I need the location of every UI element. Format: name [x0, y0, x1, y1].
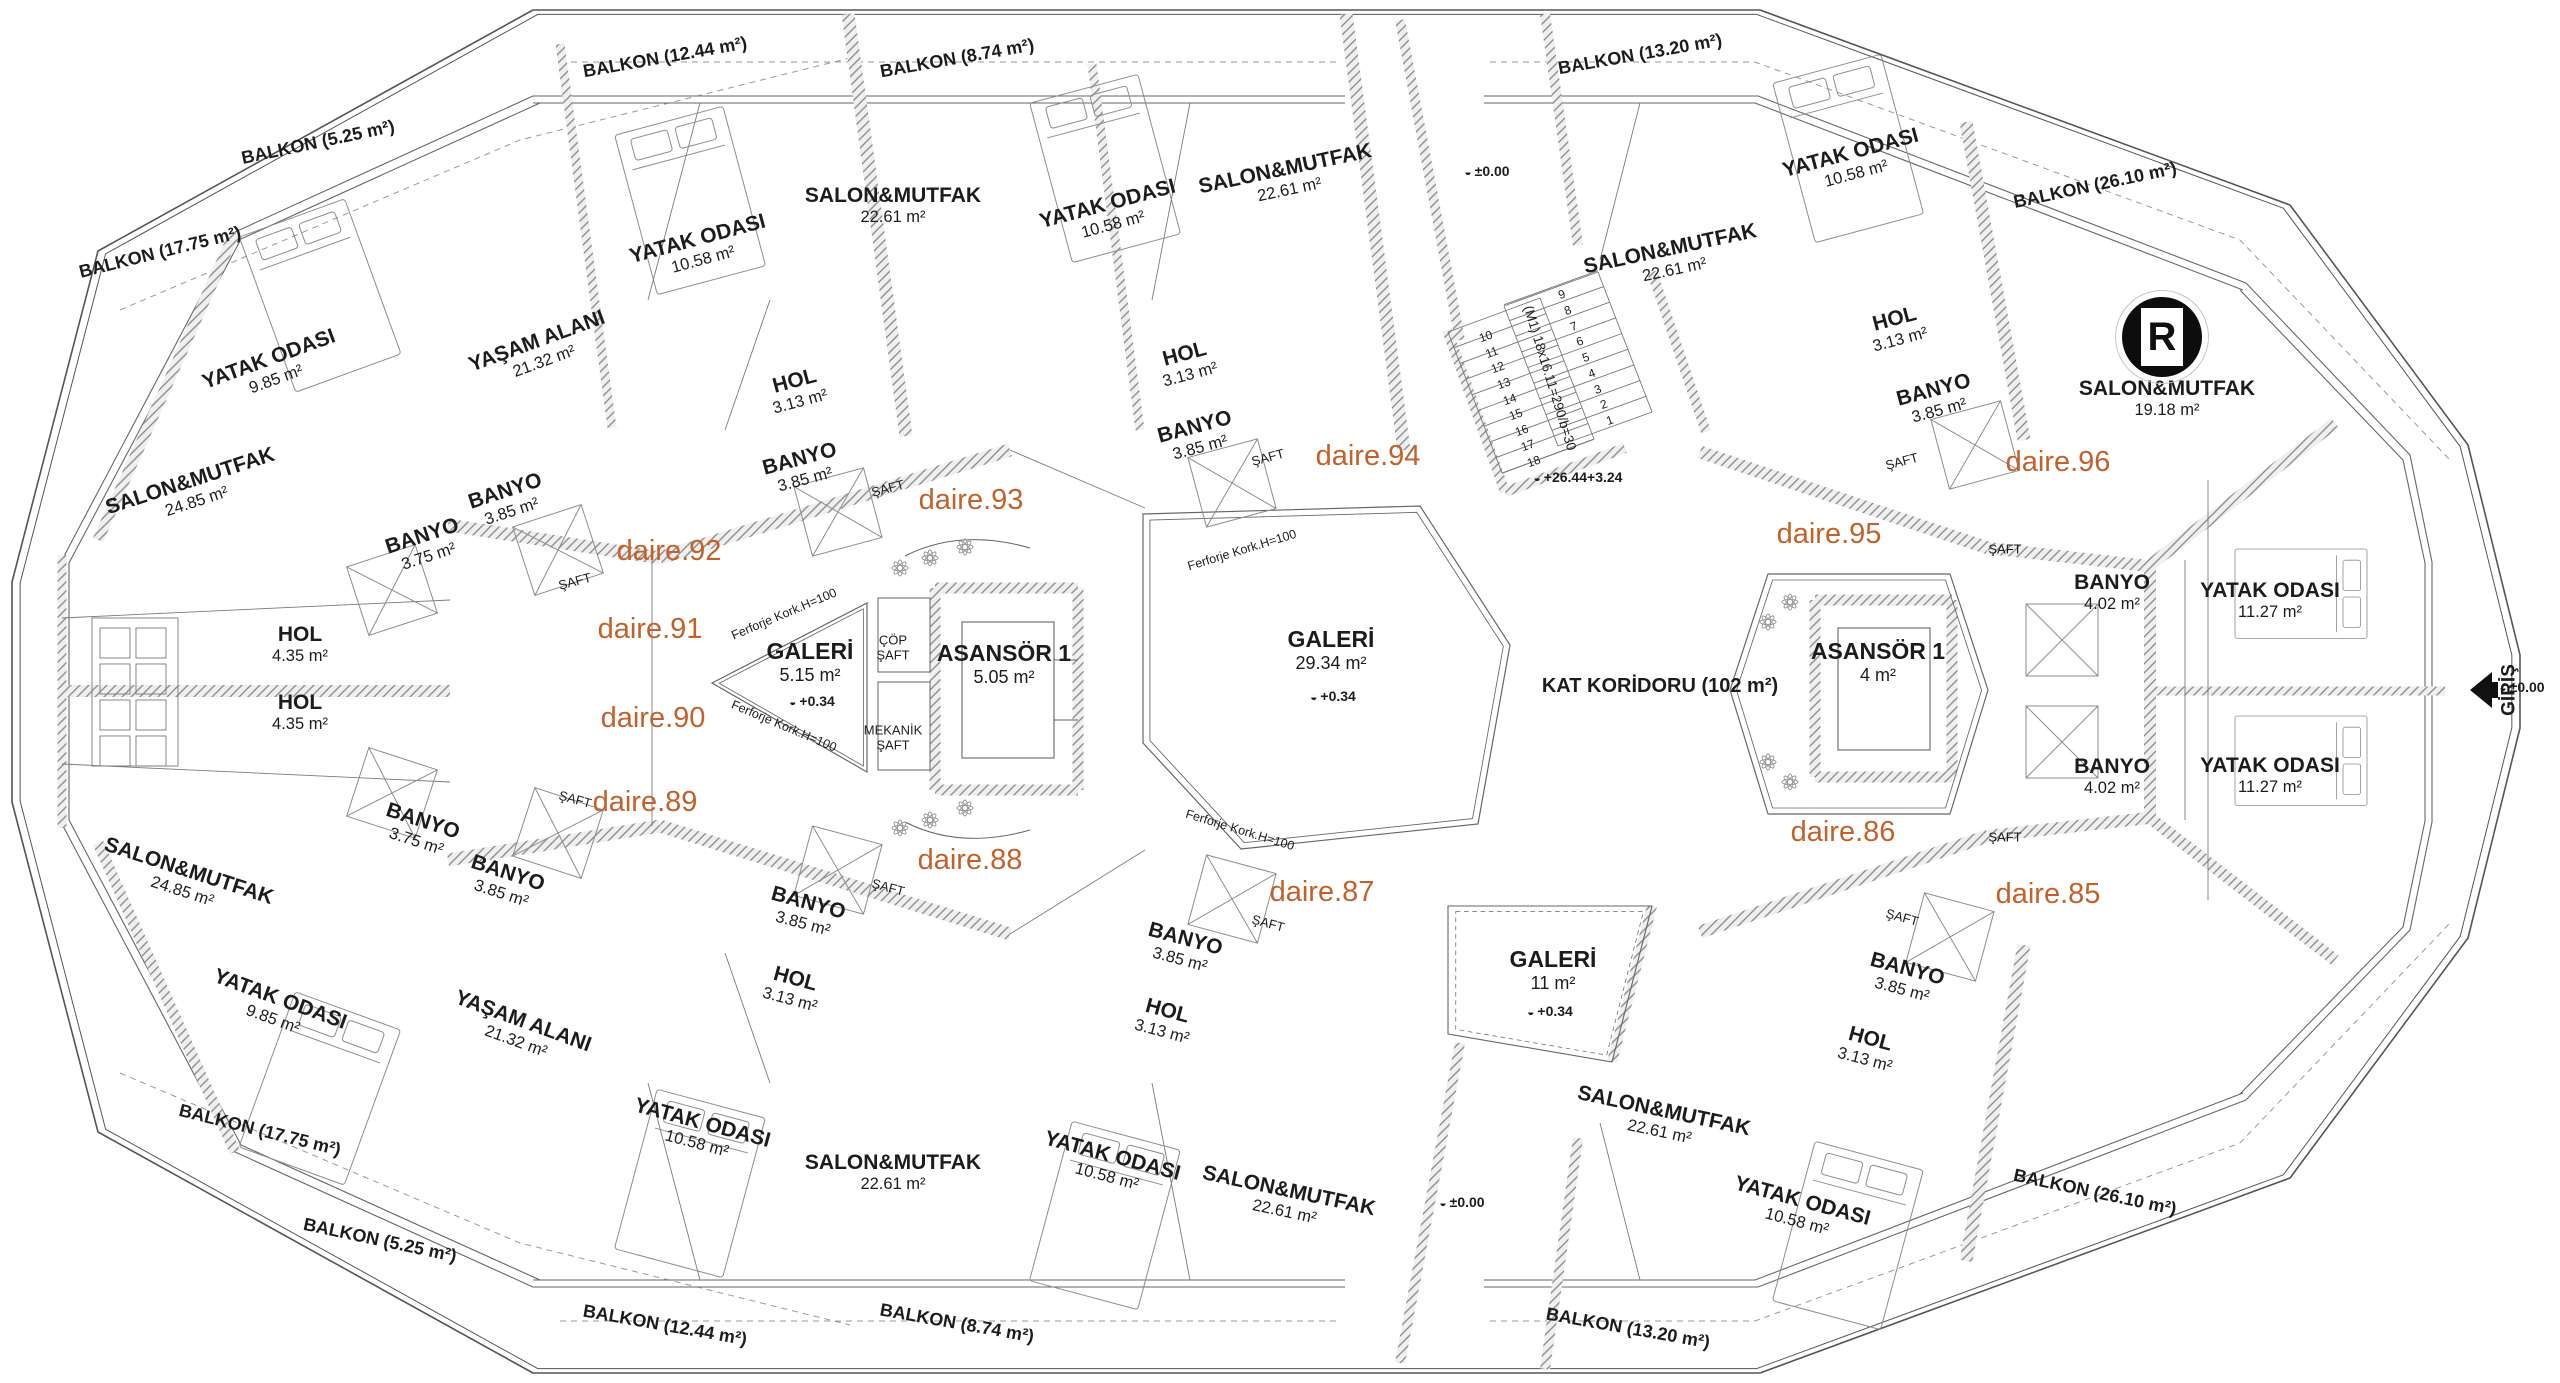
balcony-label: BALKON (12.44 m²) — [581, 33, 748, 82]
labels-layer: YATAK ODASI9.85 m²YAŞAM ALANI21.32 m²SAL… — [0, 0, 2560, 1383]
balcony-label: BALKON (17.75 m²) — [77, 222, 243, 282]
shaft-label: ŞAFT — [1884, 907, 1920, 930]
room-label: YATAK ODASI10.58 m² — [1780, 124, 1926, 201]
elevation-marker-icon: ◒ — [789, 696, 796, 709]
room-label: HOL3.13 m² — [1836, 1020, 1901, 1075]
elevation-label: ◒+0.34 — [789, 693, 835, 711]
stair-step-number: 12 — [1489, 359, 1506, 376]
apartment-label: daire.92 — [617, 535, 722, 567]
stair-step-number: 18 — [1525, 453, 1542, 470]
room-label: BANYO3.75 m² — [377, 798, 462, 861]
floorplan-canvas: YATAK ODASI9.85 m²YAŞAM ALANI21.32 m²SAL… — [0, 0, 2560, 1383]
balcony-label: BALKON (12.44 m²) — [581, 1301, 748, 1350]
stair-step-number: 9 — [1557, 288, 1568, 303]
room-label: YATAK ODASI9.85 m² — [204, 964, 350, 1051]
stair-step-number: 2 — [1599, 398, 1610, 413]
railing-label: Ferforje Kork.H=100 — [1184, 807, 1296, 853]
room-label: HOL4.35 m² — [272, 691, 328, 733]
room-label: YATAK ODASI10.58 m² — [1037, 1127, 1183, 1204]
room-label: YATAK ODASI11.27 m² — [2200, 754, 2340, 796]
shaft-label: ŞAFT — [1988, 543, 2021, 558]
stair-step-number: 7 — [1569, 320, 1580, 335]
elevation-marker-icon: ◒ — [1534, 472, 1541, 485]
stair-step-number: 5 — [1581, 351, 1592, 366]
room-label: YATAK ODASI10.58 m² — [627, 210, 773, 287]
corridor-label: KAT KORİDORU (102 m²) — [1542, 675, 1778, 697]
logo-ring-icon — [2115, 290, 2209, 384]
shaft-label: ŞAFT — [557, 571, 593, 594]
apartment-label: daire.86 — [1791, 816, 1896, 848]
shaft-label: ŞAFT — [1250, 913, 1286, 936]
brand-logo: R — [2122, 297, 2202, 377]
room-label: BANYO4.02 m² — [2074, 571, 2150, 613]
stair-step-number: 4 — [1587, 367, 1598, 382]
room-label: HOL3.13 m² — [1133, 992, 1198, 1047]
stair-step-number: 1 — [1605, 414, 1616, 429]
shaft-label: ŞAFT — [870, 478, 906, 501]
room-label: BANYO3.85 m² — [1863, 948, 1947, 1008]
room-label: YATAK ODASI11.27 m² — [2200, 579, 2340, 621]
room-label: SALON&MUTFAK22.61 m² — [1571, 1081, 1752, 1159]
room-label: SALON&MUTFAK22.61 m² — [1196, 139, 1377, 217]
elevation-label: ◒±0.00 — [1464, 163, 1509, 181]
railing-label: Ferforje Kork.H=100 — [1186, 527, 1298, 573]
room-label: BANYO3.85 m² — [1155, 406, 1239, 466]
core-label: ASANSÖR 15.05 m² — [937, 641, 1071, 687]
room-label: YATAK ODASI10.58 m² — [627, 1094, 773, 1171]
apartment-label: daire.89 — [593, 786, 698, 818]
room-label: SALON&MUTFAK22.61 m² — [805, 1151, 981, 1193]
room-label: HOL3.13 m² — [761, 960, 826, 1015]
room-label: BANYO3.85 m² — [1141, 918, 1225, 978]
elevation-label: ◒+26.44+3.24 — [1534, 469, 1623, 487]
stair-step-number: 13 — [1495, 375, 1512, 392]
room-label: SALON&MUTFAK22.61 m² — [805, 184, 981, 226]
apartment-label: daire.94 — [1316, 440, 1421, 472]
room-label: YAŞAM ALANI21.32 m² — [446, 986, 595, 1074]
elevation-marker-icon: ◒ — [1310, 691, 1317, 704]
apartment-label: daire.90 — [601, 702, 706, 734]
balcony-label: BALKON (8.74 m²) — [878, 35, 1035, 82]
core-label: GALERİ29.34 m² — [1288, 627, 1375, 673]
room-label: BANYO3.75 m² — [382, 513, 467, 576]
shaft-label: ŞAFT — [557, 789, 593, 812]
apartment-label: daire.93 — [919, 484, 1024, 516]
apartment-label: daire.85 — [1996, 878, 2101, 910]
apartment-label: daire.87 — [1270, 876, 1375, 908]
railing-label: Ferforje Kork.H=100 — [729, 585, 838, 642]
room-label: SALON&MUTFAK24.85 m² — [96, 833, 277, 927]
room-label: HOL3.13 m² — [1865, 300, 1930, 355]
room-label: BANYO3.85 m² — [764, 882, 848, 942]
stair-step-number: 15 — [1507, 406, 1524, 423]
room-label: SALON&MUTFAK22.61 m² — [1581, 219, 1762, 297]
core-label: GALERİ5.15 m² — [767, 639, 854, 685]
apartment-label: daire.91 — [598, 613, 703, 645]
shaft-label: ŞAFT — [1884, 451, 1920, 474]
elevation-label: ◒±0.00 — [1439, 1194, 1484, 1212]
balcony-label: BALKON (8.74 m²) — [878, 1300, 1035, 1347]
balcony-label: BALKON (26.10 m²) — [2012, 158, 2179, 212]
room-label: BANYO3.85 m² — [1894, 369, 1978, 429]
room-label: BANYO4.02 m² — [2074, 755, 2150, 797]
room-label: SALON&MUTFAK24.85 m² — [103, 443, 284, 537]
room-label: YATAK ODASI10.58 m² — [1727, 1172, 1873, 1249]
balcony-label: BALKON (26.10 m²) — [2012, 1165, 2179, 1219]
balcony-label: BALKON (17.75 m²) — [177, 1100, 343, 1160]
balcony-label: BALKON (13.20 m²) — [1556, 30, 1723, 79]
elevation-marker-icon: ◒ — [1439, 1197, 1446, 1210]
room-label: HOL3.13 m² — [765, 362, 830, 417]
balcony-label: BALKON (13.20 m²) — [1544, 1304, 1711, 1353]
room-label: BANYO3.85 m² — [760, 438, 844, 498]
elevation-label: ◒+0.34 — [1310, 688, 1356, 706]
stair-step-number: 6 — [1575, 335, 1586, 350]
room-label: YATAK ODASI10.58 m² — [1037, 175, 1183, 252]
stair-step-number: 17 — [1519, 437, 1536, 454]
shaft-label: MEKANİKŞAFT — [864, 723, 923, 752]
room-label: HOL3.13 m² — [1155, 335, 1220, 390]
balcony-label: BALKON (5.25 m²) — [302, 1214, 459, 1266]
core-label: GALERİ11 m² — [1510, 947, 1597, 993]
stair-step-number: 8 — [1563, 304, 1574, 319]
core-label: ASANSÖR 14 m² — [1811, 639, 1945, 685]
elevation-marker-icon: ◒ — [1464, 166, 1471, 179]
room-label: BANYO3.85 m² — [465, 468, 550, 531]
shaft-label: ŞAFT — [1250, 447, 1286, 470]
stair-step-number: 3 — [1593, 383, 1604, 398]
room-label: YATAK ODASI9.85 m² — [199, 324, 345, 411]
shaft-label: ŞAFT — [870, 877, 906, 900]
entrance-label: GİRİŞ — [2498, 664, 2519, 716]
room-label: HOL4.35 m² — [272, 623, 328, 665]
room-label: BANYO3.85 m² — [462, 850, 547, 913]
apartment-label: daire.96 — [2006, 446, 2111, 478]
stair-step-number: 10 — [1477, 328, 1494, 345]
elevation-marker-icon: ◒ — [1527, 1006, 1534, 1019]
shaft-label: ÇÖPŞAFT — [876, 633, 909, 662]
room-label: YAŞAM ALANI21.32 m² — [466, 306, 615, 394]
elevation-label: ◒+0.34 — [1527, 1003, 1573, 1021]
room-label: SALON&MUTFAK22.61 m² — [1196, 1161, 1377, 1239]
balcony-label: BALKON (5.25 m²) — [240, 116, 397, 168]
shaft-label: ŞAFT — [1988, 831, 2021, 846]
apartment-label: daire.95 — [1777, 518, 1882, 550]
apartment-label: daire.88 — [918, 844, 1023, 876]
